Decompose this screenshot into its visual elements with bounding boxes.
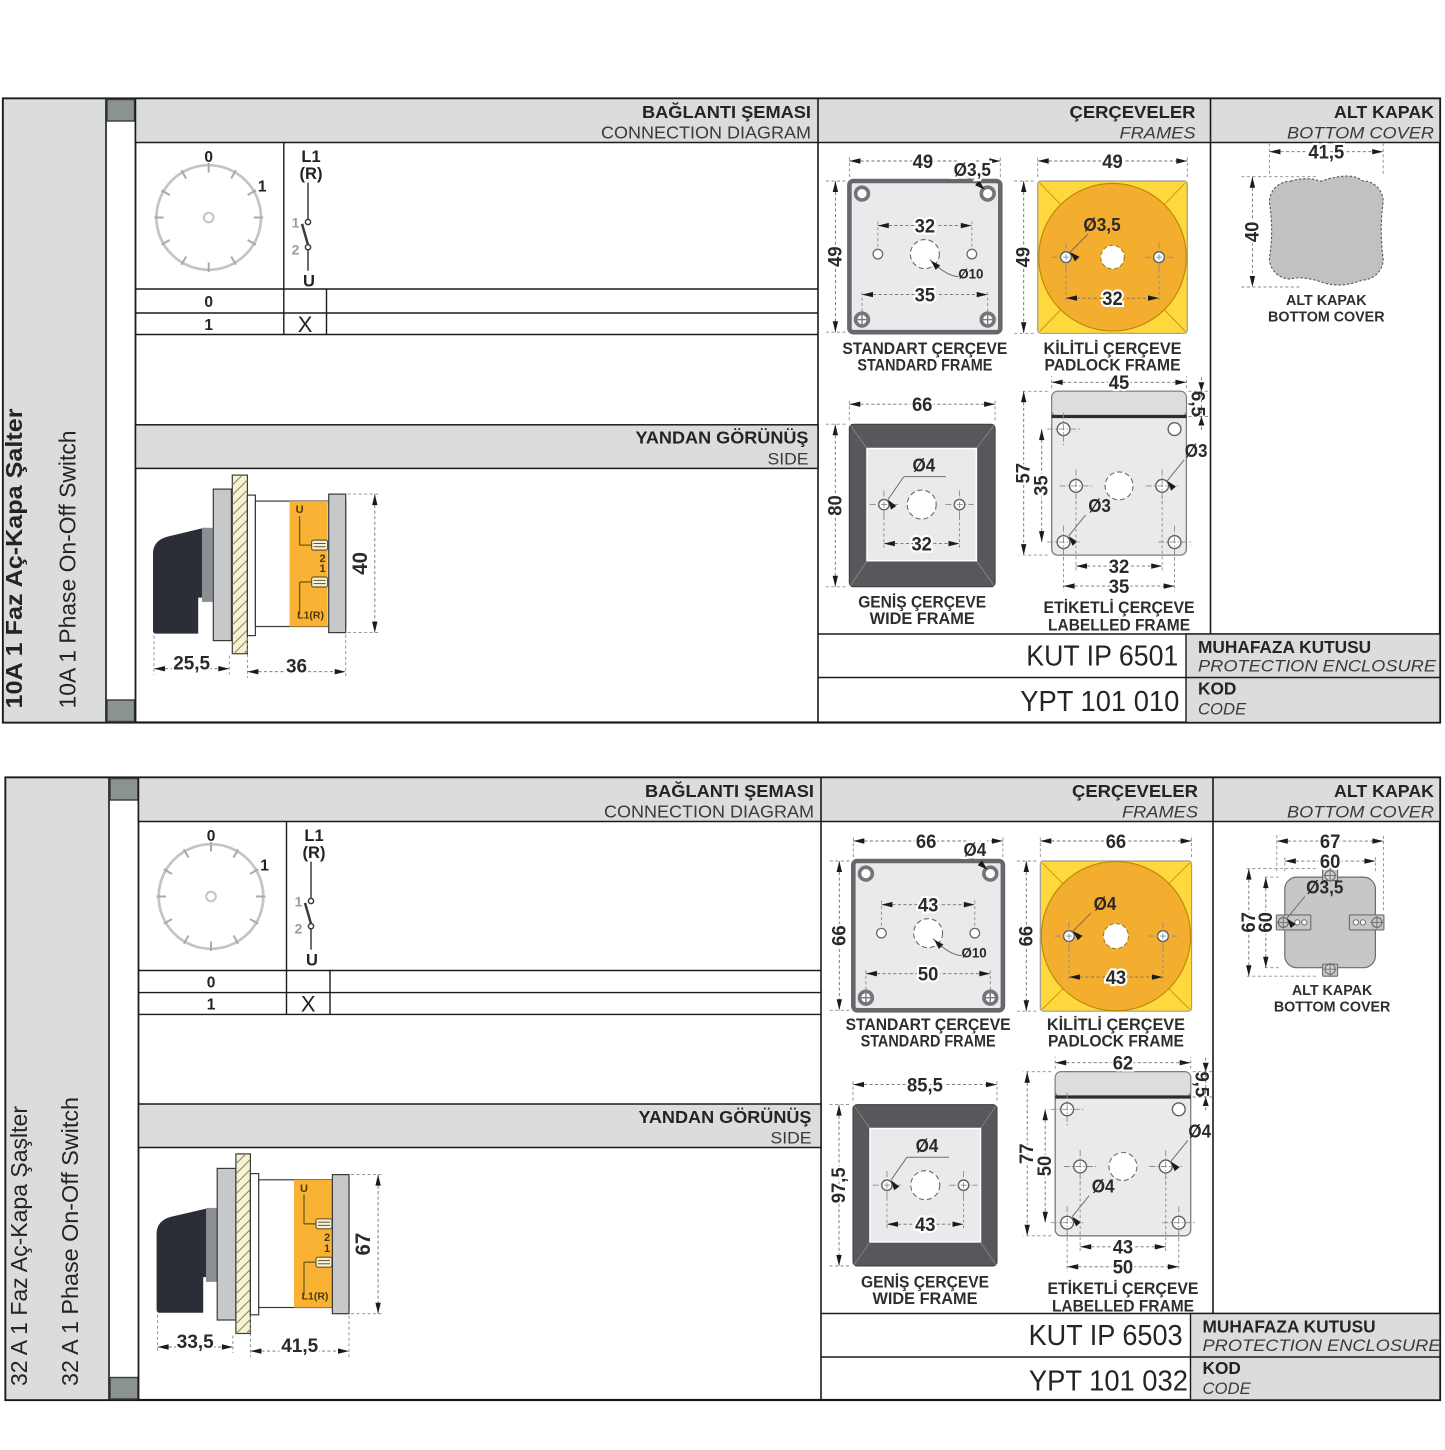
svg-text:Ø3: Ø3: [1185, 441, 1208, 461]
svg-text:ETİKETLİ ÇERÇEVE: ETİKETLİ ÇERÇEVE: [1047, 1280, 1198, 1298]
svg-text:45: 45: [1109, 373, 1130, 394]
svg-text:60: 60: [1256, 912, 1277, 933]
svg-text:43: 43: [1113, 1238, 1134, 1259]
svg-text:KİLİTLİ ÇERÇEVE: KİLİTLİ ÇERÇEVE: [1047, 1016, 1185, 1034]
svg-text:Ø3,5: Ø3,5: [954, 160, 991, 180]
svg-text:66: 66: [829, 925, 850, 946]
svg-text:43: 43: [1106, 968, 1127, 989]
svg-text:GENİŞ ÇERÇEVE: GENİŞ ÇERÇEVE: [861, 1273, 989, 1291]
svg-text:43: 43: [915, 1215, 936, 1236]
svg-text:2: 2: [292, 242, 300, 258]
svg-text:KOD: KOD: [1198, 679, 1236, 699]
svg-text:MUHAFAZA KUTUSU: MUHAFAZA KUTUSU: [1198, 637, 1371, 657]
svg-text:80: 80: [825, 495, 846, 516]
svg-text:50: 50: [918, 964, 939, 985]
svg-text:Ø4: Ø4: [913, 456, 936, 476]
svg-text:2: 2: [324, 1232, 330, 1244]
svg-text:FRAMES: FRAMES: [1122, 802, 1199, 821]
svg-text:32: 32: [1109, 557, 1130, 578]
svg-text:YANDAN GÖRÜNÜŞ: YANDAN GÖRÜNÜŞ: [636, 428, 809, 448]
svg-text:X: X: [298, 312, 313, 337]
svg-text:Ø4: Ø4: [964, 840, 987, 860]
svg-text:25,5: 25,5: [173, 653, 210, 675]
svg-text:41,5: 41,5: [281, 1335, 318, 1357]
svg-text:BAĞLANTI ŞEMASI: BAĞLANTI ŞEMASI: [645, 781, 814, 801]
svg-text:1: 1: [292, 215, 300, 231]
svg-text:62: 62: [1113, 1054, 1134, 1075]
svg-text:32 A 1 Phase On-Off Switch: 32 A 1 Phase On-Off Switch: [57, 1097, 83, 1386]
svg-text:33,5: 33,5: [177, 1331, 214, 1353]
svg-text:1: 1: [207, 997, 216, 1014]
svg-text:ALT KAPAK: ALT KAPAK: [1292, 983, 1373, 999]
svg-text:97,5: 97,5: [829, 1167, 850, 1203]
svg-text:1: 1: [260, 858, 269, 875]
svg-text:YPT 101 010: YPT 101 010: [1020, 686, 1179, 718]
svg-text:32: 32: [1102, 289, 1123, 310]
svg-text:85,5: 85,5: [907, 1075, 943, 1096]
svg-text:41,5: 41,5: [1308, 143, 1344, 164]
svg-text:0: 0: [204, 149, 213, 166]
svg-text:32: 32: [911, 534, 932, 555]
svg-text:GENİŞ ÇERÇEVE: GENİŞ ÇERÇEVE: [858, 593, 986, 611]
svg-text:CONNECTION DIAGRAM: CONNECTION DIAGRAM: [604, 801, 814, 821]
svg-text:49: 49: [825, 246, 846, 267]
svg-text:Ø4: Ø4: [1094, 894, 1117, 914]
svg-text:ALT KAPAK: ALT KAPAK: [1334, 781, 1434, 801]
svg-text:PADLOCK FRAME: PADLOCK FRAME: [1048, 1033, 1184, 1051]
svg-text:L1: L1: [301, 148, 320, 166]
svg-text:66: 66: [912, 395, 933, 416]
svg-text:67: 67: [1320, 832, 1341, 853]
svg-text:X: X: [301, 992, 316, 1017]
svg-text:Ø3,5: Ø3,5: [1083, 215, 1120, 235]
svg-text:L1(R): L1(R): [302, 1291, 329, 1303]
svg-text:ETİKETLİ ÇERÇEVE: ETİKETLİ ÇERÇEVE: [1044, 599, 1195, 617]
svg-text:BOTTOM COVER: BOTTOM COVER: [1268, 310, 1385, 326]
svg-text:2: 2: [295, 921, 303, 937]
svg-text:WIDE FRAME: WIDE FRAME: [870, 610, 975, 628]
svg-text:36: 36: [286, 656, 307, 678]
svg-text:10A 1 Faz Aç-Kapa Şalter: 10A 1 Faz Aç-Kapa Şalter: [1, 409, 27, 709]
svg-text:YPT 101 032: YPT 101 032: [1029, 1366, 1188, 1398]
svg-text:ÇERÇEVELER: ÇERÇEVELER: [1070, 102, 1196, 122]
svg-text:50: 50: [1035, 1156, 1056, 1177]
svg-text:10A 1 Phase On-Off Switch: 10A 1 Phase On-Off Switch: [55, 431, 81, 709]
svg-text:YANDAN GÖRÜNÜŞ: YANDAN GÖRÜNÜŞ: [639, 1107, 812, 1127]
svg-text:CODE: CODE: [1203, 1379, 1252, 1398]
svg-text:BAĞLANTI ŞEMASI: BAĞLANTI ŞEMASI: [642, 102, 811, 122]
svg-text:(R): (R): [300, 165, 323, 183]
svg-text:1: 1: [295, 894, 303, 910]
svg-text:32: 32: [915, 216, 936, 237]
svg-text:Ø4: Ø4: [1092, 1177, 1115, 1197]
svg-text:Ø4: Ø4: [916, 1136, 939, 1156]
svg-text:Ø4: Ø4: [1188, 1122, 1211, 1142]
svg-text:L1: L1: [304, 827, 323, 845]
svg-text:35: 35: [1109, 577, 1130, 598]
svg-text:35: 35: [915, 285, 936, 306]
svg-text:60: 60: [1320, 852, 1341, 873]
svg-text:1: 1: [324, 1243, 330, 1255]
svg-text:STANDART ÇERÇEVE: STANDART ÇERÇEVE: [846, 1016, 1011, 1034]
svg-text:Ø3,5: Ø3,5: [1306, 877, 1343, 897]
svg-text:40: 40: [1242, 222, 1263, 243]
svg-text:66: 66: [1016, 926, 1037, 947]
svg-text:66: 66: [916, 832, 937, 853]
svg-text:32 A 1 Faz Aç-Kapa Şaşlter: 32 A 1 Faz Aç-Kapa Şaşlter: [6, 1106, 32, 1386]
svg-text:BOTTOM COVER: BOTTOM COVER: [1274, 1000, 1391, 1016]
svg-text:ÇERÇEVELER: ÇERÇEVELER: [1072, 781, 1198, 801]
svg-text:Ø10: Ø10: [962, 945, 987, 961]
svg-text:MUHAFAZA KUTUSU: MUHAFAZA KUTUSU: [1203, 1317, 1376, 1337]
svg-text:L1(R): L1(R): [297, 610, 324, 622]
svg-text:40: 40: [349, 552, 372, 575]
svg-text:6,5: 6,5: [1186, 391, 1207, 417]
svg-text:BOTTOM COVER: BOTTOM COVER: [1287, 123, 1434, 142]
svg-text:67: 67: [352, 1233, 375, 1256]
svg-text:CONNECTION DIAGRAM: CONNECTION DIAGRAM: [601, 122, 811, 142]
svg-text:ALT KAPAK: ALT KAPAK: [1334, 102, 1434, 122]
svg-text:STANDARD FRAME: STANDARD FRAME: [857, 356, 992, 374]
svg-text:PROTECTION ENCLOSURE: PROTECTION ENCLOSURE: [1203, 1336, 1442, 1355]
svg-text:43: 43: [918, 895, 939, 916]
svg-text:50: 50: [1113, 1258, 1134, 1279]
svg-text:49: 49: [1102, 152, 1123, 173]
svg-text:Ø3: Ø3: [1088, 496, 1111, 516]
svg-text:STANDART ÇERÇEVE: STANDART ÇERÇEVE: [842, 340, 1007, 358]
svg-text:9,5: 9,5: [1191, 1072, 1212, 1098]
svg-text:(R): (R): [303, 844, 326, 862]
svg-text:1: 1: [258, 179, 267, 196]
svg-text:66: 66: [1106, 832, 1127, 853]
svg-text:Ø10: Ø10: [958, 266, 983, 282]
svg-text:KOD: KOD: [1203, 1358, 1241, 1378]
svg-text:FRAMES: FRAMES: [1120, 123, 1197, 142]
svg-text:49: 49: [1014, 247, 1035, 268]
svg-text:1: 1: [320, 563, 326, 575]
svg-text:KİLİTLİ ÇERÇEVE: KİLİTLİ ÇERÇEVE: [1044, 340, 1182, 358]
svg-text:U: U: [300, 1183, 308, 1195]
svg-text:BOTTOM COVER: BOTTOM COVER: [1287, 802, 1434, 821]
svg-text:0: 0: [207, 975, 216, 992]
svg-text:KUT IP 6501: KUT IP 6501: [1026, 641, 1178, 673]
svg-text:KUT IP 6503: KUT IP 6503: [1029, 1320, 1183, 1352]
svg-text:CODE: CODE: [1198, 700, 1247, 719]
svg-text:PADLOCK FRAME: PADLOCK FRAME: [1045, 356, 1181, 374]
svg-text:U: U: [303, 272, 315, 290]
svg-text:WIDE FRAME: WIDE FRAME: [873, 1290, 978, 1308]
svg-text:SIDE: SIDE: [771, 1130, 812, 1148]
svg-text:35: 35: [1032, 475, 1053, 496]
svg-text:PROTECTION ENCLOSURE: PROTECTION ENCLOSURE: [1198, 657, 1437, 676]
svg-text:U: U: [306, 951, 318, 969]
svg-text:0: 0: [207, 828, 216, 845]
svg-text:U: U: [296, 504, 304, 516]
svg-text:49: 49: [913, 152, 934, 173]
svg-text:LABELLED FRAME: LABELLED FRAME: [1048, 617, 1190, 635]
svg-text:1: 1: [204, 317, 213, 334]
svg-text:STANDARD FRAME: STANDARD FRAME: [861, 1033, 996, 1051]
svg-text:0: 0: [204, 294, 213, 311]
svg-text:ALT KAPAK: ALT KAPAK: [1286, 293, 1367, 309]
svg-text:SIDE: SIDE: [768, 450, 809, 468]
